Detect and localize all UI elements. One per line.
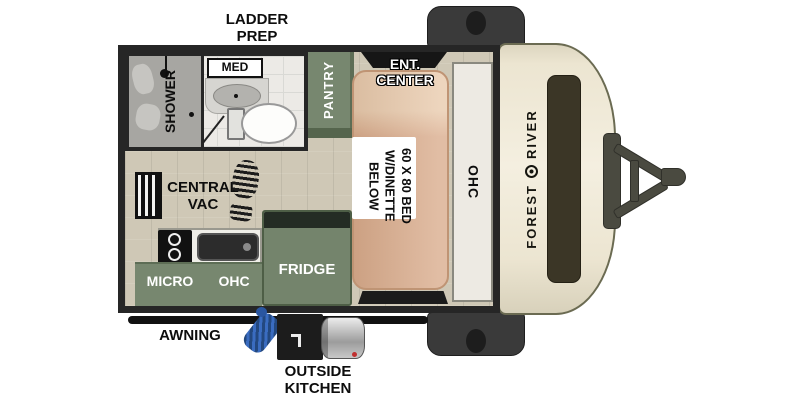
front-cap-window <box>547 75 581 283</box>
awning-label: AWNING <box>150 328 230 345</box>
front-stabilizer <box>427 6 525 48</box>
brand-first-word: FOREST <box>524 184 539 249</box>
toilet <box>241 103 297 144</box>
stabilizer-knob-icon <box>466 329 486 353</box>
brand-second-word: RIVER <box>524 109 539 159</box>
shower-texture <box>134 102 162 132</box>
griddle-indicator-icon <box>352 352 357 357</box>
pantry-label: PANTRY <box>322 61 337 119</box>
hitch-coupler <box>661 168 686 186</box>
drain-icon <box>234 94 238 98</box>
pantry-shelf <box>308 128 354 138</box>
bed-label: 60 X 80 BED W/DINETTE BELOW <box>365 106 414 266</box>
forest-river-logo-icon <box>525 165 538 178</box>
bathroom-door <box>202 115 225 143</box>
ohc-right-label: OHC <box>465 165 481 199</box>
micro-label: MICRO <box>135 274 205 290</box>
bathroom: SHOWER MED <box>125 52 308 151</box>
trailer-body: SHOWER MED PANTRY ENT. CENTER 60 X 80 BE… <box>118 45 500 313</box>
ohc-kitchen-label: OHC <box>205 274 263 290</box>
fridge-label: FRIDGE <box>262 262 352 279</box>
outside-kitchen-box <box>277 314 323 360</box>
shower-label: SHOWER <box>163 56 179 147</box>
fridge <box>262 210 352 306</box>
rear-stabilizer <box>427 312 525 356</box>
med-label: MED <box>222 61 249 74</box>
floorplan-canvas: LADDER PREP FOREST RIVER SHOWER <box>0 0 800 400</box>
brand-label: FOREST RIVER <box>523 69 539 289</box>
overhead-cabinet-right: OHC <box>452 62 493 302</box>
hose-cap-icon <box>256 307 267 317</box>
window-icon <box>135 172 162 219</box>
hitch-crossmember <box>630 160 639 202</box>
trailer-front-cap: FOREST RIVER <box>498 43 616 315</box>
stabilizer-knob-icon <box>466 11 486 35</box>
drain-icon <box>189 112 194 117</box>
burner-icon <box>168 233 181 246</box>
medicine-cabinet: MED <box>207 58 263 78</box>
faucet-icon <box>298 337 301 347</box>
shower-texture <box>130 62 157 96</box>
pantry-cabinet: PANTRY <box>308 52 354 128</box>
cooktop <box>158 230 192 264</box>
griddle-cylinder <box>321 317 365 359</box>
ladder-prep-label: LADDER PREP <box>207 12 307 46</box>
shower-stall: SHOWER <box>129 56 204 147</box>
entry-step <box>358 291 448 304</box>
burner-icon <box>168 248 181 261</box>
faucet-knob-icon <box>243 243 251 251</box>
ent-center-label: ENT. CENTER <box>355 57 455 88</box>
outside-kitchen-label: OUTSIDE KITCHEN <box>262 364 374 398</box>
bootprint-icon <box>226 158 262 223</box>
fridge-top <box>264 212 350 228</box>
